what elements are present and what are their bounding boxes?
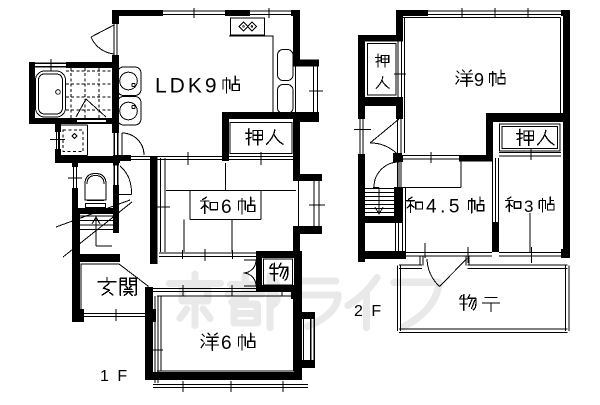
svg-text:1 F: 1 F	[100, 368, 129, 385]
svg-text:2 F: 2 F	[354, 303, 383, 320]
svg-text:3: 3	[524, 197, 533, 216]
svg-text:4.5: 4.5	[426, 197, 463, 218]
svg-text:6: 6	[221, 333, 232, 354]
svg-text:6: 6	[221, 197, 232, 218]
svg-text:9: 9	[474, 70, 484, 90]
svg-text:LDK9: LDK9	[155, 75, 220, 98]
